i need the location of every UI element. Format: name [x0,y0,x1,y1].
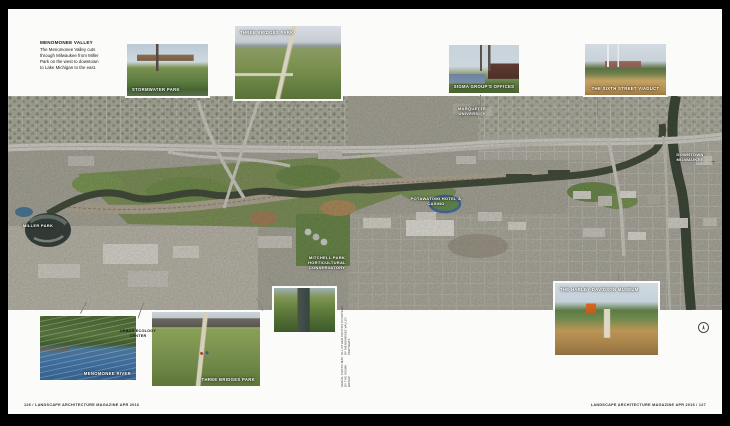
intro-body: The Menomonee Valley cuts through Milwau… [40,47,102,71]
intro-title: MENOMONEE VALLEY [40,40,102,45]
photo-label-three-bridges-park-top: THREE BRIDGES PARK [240,30,293,35]
leader-line-sigma [480,95,481,113]
map-label-mitchell-park-conservatory: MITCHELL PARK HORTICULTURAL CONSERVATORY [296,256,358,270]
photo-sigma-group-offices: SIGMA GROUP'S OFFICES [447,43,521,95]
compass-icon [698,322,709,333]
intro-block: MENOMONEE VALLEY The Menomonee Valley cu… [40,40,102,71]
aerial-map-graphic [8,96,722,310]
photo-label-menomonee-river: MENOMONEE RIVER [84,371,131,376]
photo-canal [272,286,337,334]
photo-credit: AERIAL PHOTO MAP BY THE SIGMA GROUP ALL … [341,305,352,387]
photo-three-bridges-park-bottom: THREE BRIDGES PARK [150,310,262,388]
photo-label-harley-davidson-museum: THE HARLEY-DAVIDSON MUSEUM [560,287,639,292]
photo-credit-line1: AERIAL PHOTO MAP BY THE SIGMA GROUP [341,356,352,387]
map-label-downtown-milwaukee: DOWNTOWN MILWAUKEE [668,153,712,163]
footer-page-left: 126 / LANDSCAPE ARCHITECTURE MAGAZINE AP… [24,403,139,407]
arrow-right-icon: → [709,158,716,165]
photo-menomonee-river: MENOMONEE RIVER [38,314,138,382]
photo-label-sigma-group-offices: SIGMA GROUP'S OFFICES [454,84,515,89]
photo-label-three-bridges-park-bottom: THREE BRIDGES PARK [202,377,255,382]
photo-stormwater-park: STORMWATER PARK [125,42,210,98]
footer-page-right: LANDSCAPE ARCHITECTURE MAGAZINE APR 2016… [591,403,706,407]
photo-three-bridges-park-top: THREE BRIDGES PARK [233,24,343,101]
map-label-miller-park: MILLER PARK [18,224,58,229]
magazine-spread: MILLER PARK MARQUETTE UNIVERSITY POTAWAT… [8,9,722,414]
photo-sixth-street-viaduct: THE SIXTH STREET VIADUCT [583,42,668,97]
aerial-map [8,96,722,310]
photo-harley-davidson-museum: THE HARLEY-DAVIDSON MUSEUM [553,281,660,357]
photo-label-sixth-street-viaduct: THE SIXTH STREET VIADUCT [592,86,660,91]
photo-credit-line2: ALL OTHER PHOTOS COURTESY OF MENOMONEE V… [341,305,352,355]
leader-line-viaduct [597,97,598,116]
map-label-urban-ecology-center: URBAN ECOLOGY CENTER [116,329,160,338]
map-label-marquette-university: MARQUETTE UNIVERSITY [446,107,498,117]
photo-label-stormwater-park: STORMWATER PARK [132,87,180,92]
map-label-potawatomi-hotel-casino: POTAWATOMI HOTEL & CASINO [406,197,466,207]
